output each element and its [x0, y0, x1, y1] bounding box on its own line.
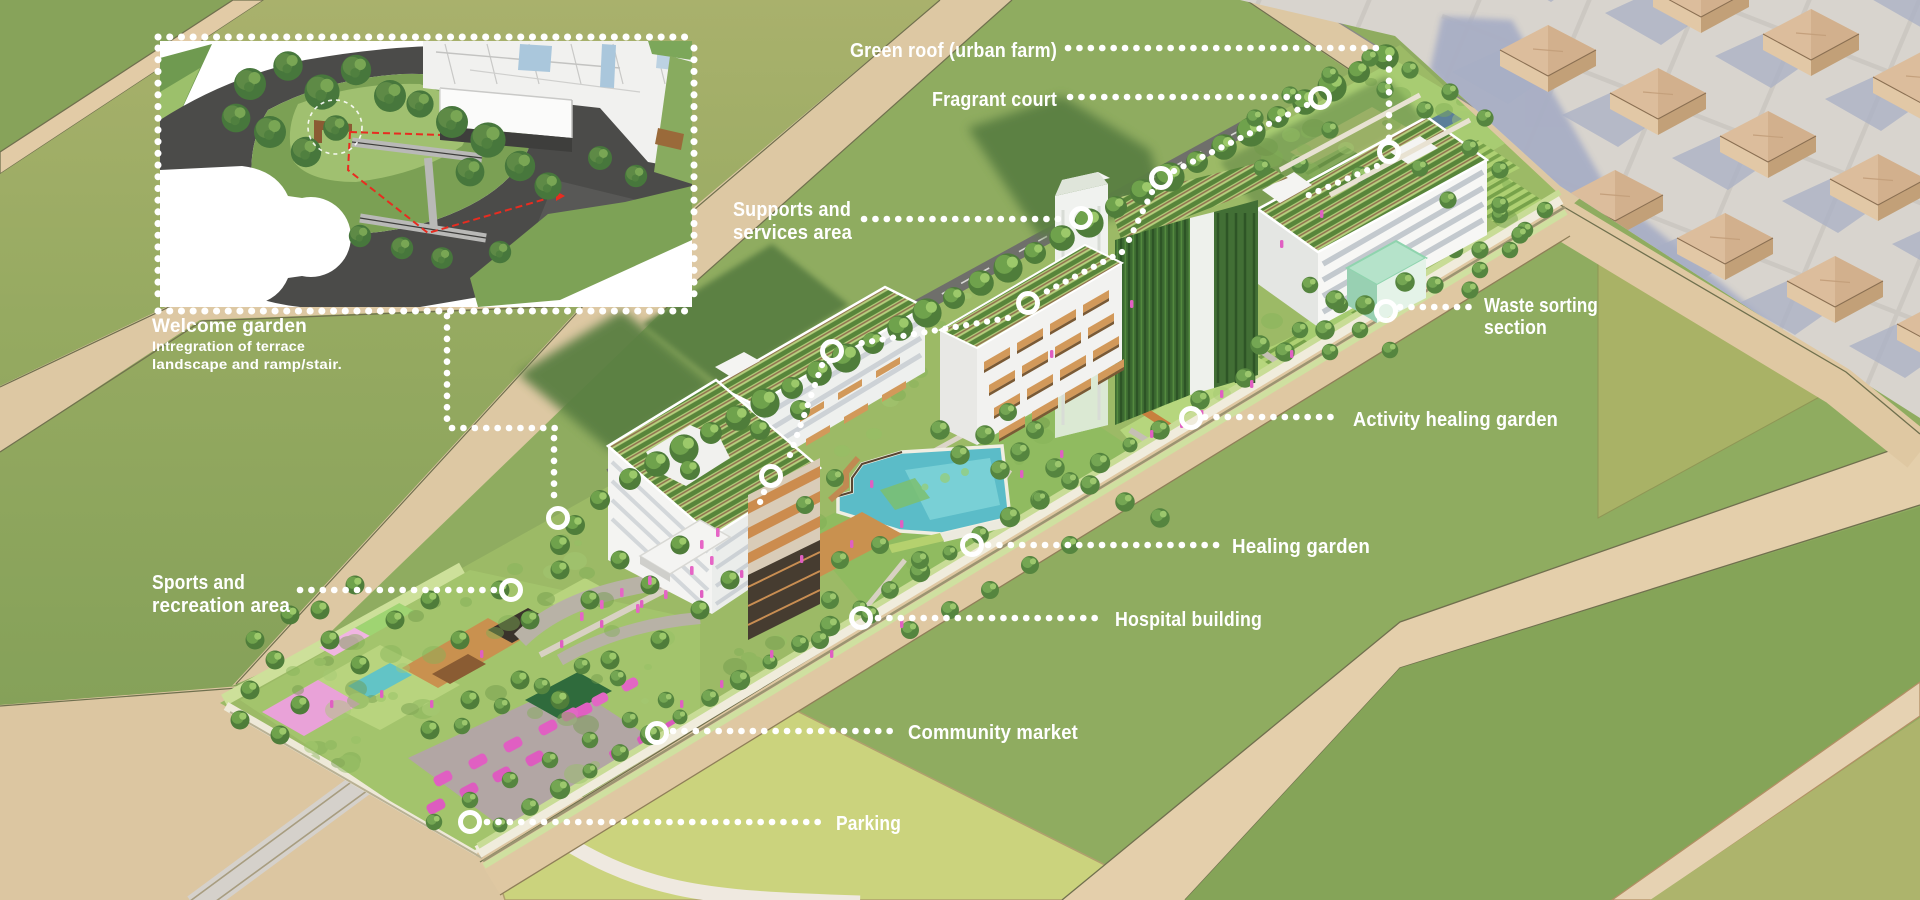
svg-text:Intregration of terrace: Intregration of terrace — [152, 339, 305, 354]
svg-text:Community market: Community market — [908, 722, 1078, 744]
svg-text:landscape and ramp/stair.: landscape and ramp/stair. — [152, 357, 342, 372]
svg-text:Activity healing garden: Activity healing garden — [1353, 409, 1558, 431]
svg-text:Parking: Parking — [836, 813, 901, 835]
svg-text:Sports and: Sports and — [152, 572, 245, 594]
svg-text:Welcome garden: Welcome garden — [152, 315, 307, 337]
svg-text:Supports and: Supports and — [733, 199, 851, 221]
svg-text:Green roof (urban farm): Green roof (urban farm) — [850, 40, 1057, 62]
svg-text:Hospital building: Hospital building — [1115, 609, 1262, 631]
svg-text:services area: services area — [733, 222, 853, 244]
svg-text:Waste sorting: Waste sorting — [1484, 295, 1598, 317]
svg-text:Healing garden: Healing garden — [1232, 536, 1370, 558]
svg-text:section: section — [1484, 317, 1547, 339]
svg-text:recreation area: recreation area — [152, 595, 291, 617]
svg-text:Fragrant court: Fragrant court — [932, 89, 1057, 111]
